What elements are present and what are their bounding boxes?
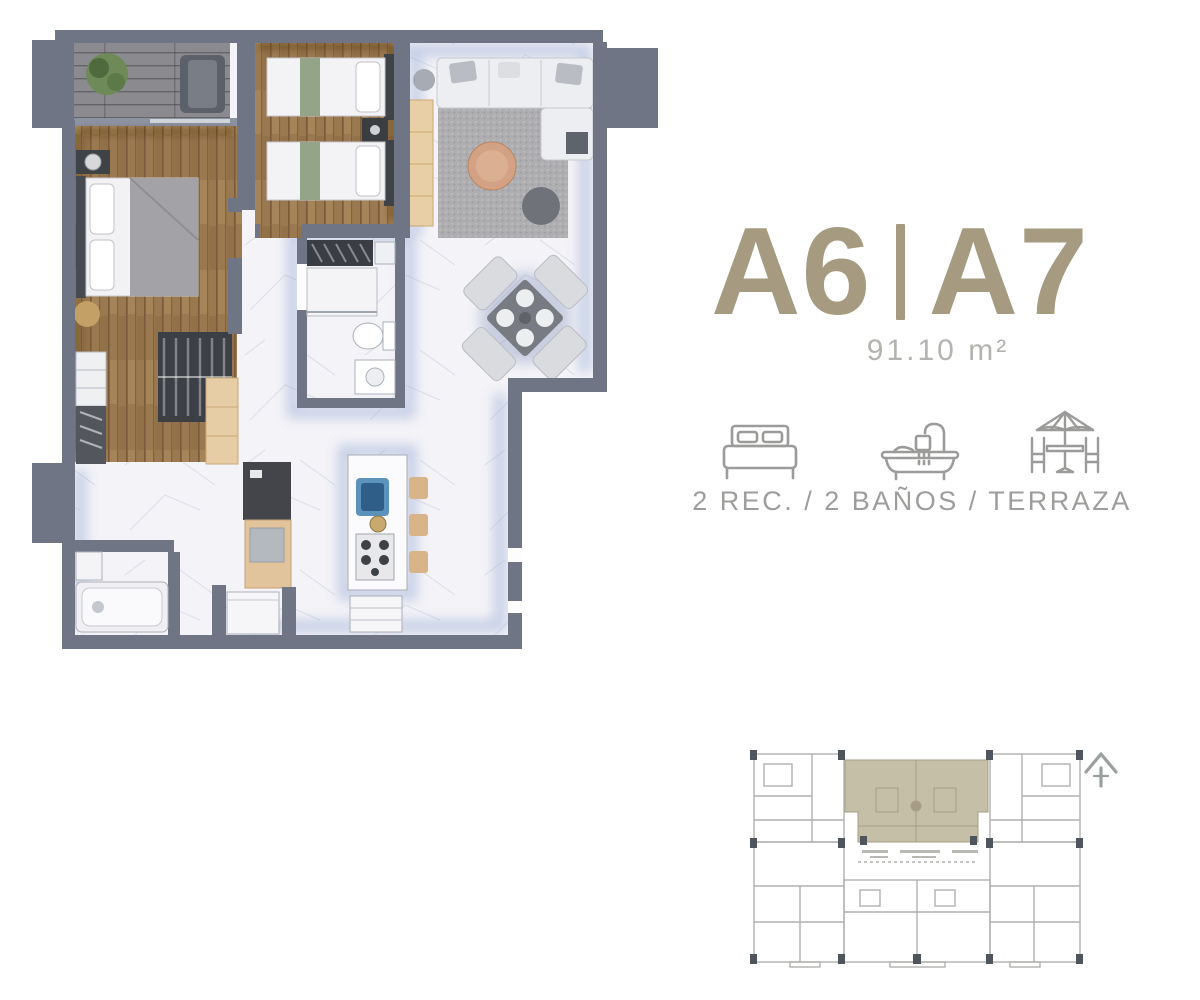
unit-id-right: A7	[929, 210, 1090, 334]
kitchen-counter	[350, 596, 402, 632]
key-plan-dimension-marks	[862, 850, 978, 858]
north-arrow-icon	[1086, 754, 1116, 786]
terrace-icon	[1022, 410, 1108, 484]
tv-cabinet	[407, 100, 433, 226]
pouf	[74, 301, 100, 327]
sofa-pillow	[449, 60, 478, 83]
washing-machine	[227, 592, 279, 634]
floorplan-sheet: A6 A7 91.10 m²	[0, 0, 1200, 1000]
terrace	[74, 42, 237, 126]
faucet	[370, 516, 386, 532]
features-caption: 2 REC. / 2 BAÑOS / TERRAZA	[672, 486, 1152, 517]
unit-id-left: A6	[711, 210, 872, 334]
closet-left-upper	[76, 352, 106, 406]
building-key-plan	[738, 736, 1122, 976]
unit-area: 91.10 m²	[698, 334, 1178, 368]
wall-block-top-left	[32, 40, 74, 128]
title-divider	[896, 224, 905, 320]
wall-block-bottom-left	[32, 463, 75, 543]
bed-headboard	[76, 176, 86, 298]
side-table	[566, 132, 588, 154]
floor-lamp	[413, 69, 435, 91]
desk-chair	[250, 528, 284, 562]
bathtub-drain	[92, 601, 104, 613]
bed-blanket	[130, 178, 198, 296]
stool-1	[409, 477, 428, 499]
bathtub-icon	[874, 418, 972, 484]
stool-2	[409, 514, 428, 536]
stool-3	[409, 551, 428, 573]
bed-icon	[712, 422, 808, 484]
ottoman	[522, 187, 560, 225]
wall-block-top-right	[598, 48, 658, 128]
unit-title: A6 A7	[660, 212, 1140, 332]
features-row	[660, 412, 1140, 488]
closet-left-lower	[76, 406, 106, 464]
apartment-floor-plan	[20, 16, 668, 664]
shower	[307, 268, 377, 316]
tan-cabinet	[206, 378, 238, 464]
desk-nook	[243, 462, 291, 588]
toilet	[353, 323, 383, 349]
sink	[76, 552, 102, 580]
sofa-pillow	[555, 62, 583, 85]
